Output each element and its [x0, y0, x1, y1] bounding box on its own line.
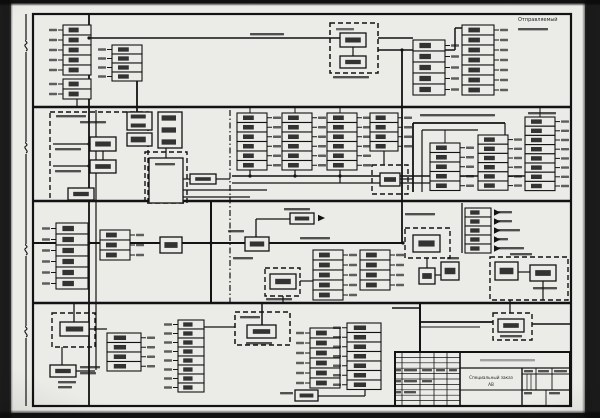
terminal-tag-smudge: [42, 238, 50, 240]
text-smudge: [498, 229, 520, 231]
text-smudge: [404, 391, 416, 393]
terminal-tag-smudge: [333, 374, 341, 376]
text-smudge: [240, 316, 260, 318]
terminal-tag-smudge: [296, 372, 304, 374]
terminal-label-smudge: [288, 115, 299, 120]
text-smudge: [233, 257, 253, 259]
terminal-tag-smudge: [561, 139, 569, 141]
terminal-label-smudge: [114, 345, 126, 350]
terminal-label-smudge: [333, 153, 344, 158]
terminal-tag-smudge: [333, 355, 341, 357]
text-smudge: [396, 380, 401, 382]
terminal-tag-smudge: [49, 59, 57, 61]
terminal-tag-smudge: [42, 282, 50, 284]
terminal-label-smudge: [183, 331, 192, 335]
component-label-smudge: [131, 124, 146, 128]
terminal-label-smudge: [436, 155, 447, 160]
text-smudge: [498, 247, 524, 249]
terminal-label-smudge: [106, 253, 117, 258]
terminal-tag-smudge: [136, 234, 144, 236]
text-smudge: [80, 372, 96, 374]
terminal-label-smudge: [316, 371, 327, 376]
terminal-label-smudge: [484, 174, 495, 178]
text-smudge: [420, 114, 495, 116]
terminal-label-smudge: [531, 184, 542, 188]
terminal-label-smudge: [419, 43, 431, 48]
terminal-label-smudge: [484, 165, 495, 169]
terminal-tag-smudge: [147, 365, 155, 367]
terminal-label-smudge: [354, 354, 366, 359]
component-label-smudge: [131, 137, 146, 143]
terminal-label-smudge: [531, 147, 542, 151]
terminal-label-smudge: [531, 156, 542, 160]
terminal-label-smudge: [354, 335, 366, 340]
text-smudge: [449, 369, 457, 371]
photo-background: ОтправляемыйСпециальный заказАВ: [0, 0, 600, 418]
diagram-text: АВ: [488, 382, 494, 387]
text-smudge: [284, 208, 310, 210]
terminal-label-smudge: [62, 270, 74, 275]
terminal-tag-smudge: [273, 164, 281, 166]
terminal-tag-smudge: [98, 57, 106, 59]
terminal-label-smudge: [106, 243, 117, 248]
component-label-smudge: [295, 217, 309, 221]
terminal-tag-smudge: [296, 382, 304, 384]
terminal-tag-smudge: [404, 145, 412, 147]
text-smudge: [524, 392, 532, 394]
terminal-label-smudge: [333, 144, 344, 149]
terminal-label-smudge: [316, 351, 327, 356]
terminal-label-smudge: [333, 115, 344, 120]
terminal-tag-smudge: [514, 148, 522, 150]
component-label-smudge: [345, 37, 361, 42]
terminal-tag-smudge: [396, 284, 404, 286]
terminal-label-smudge: [531, 119, 542, 123]
terminal-tag-smudge: [318, 155, 326, 157]
terminal-tag-smudge: [451, 77, 459, 79]
junction-dot: [401, 241, 404, 244]
text-smudge: [500, 335, 522, 337]
terminal-tag-smudge: [333, 384, 341, 386]
text-smudge: [404, 369, 417, 371]
text-smudge: [336, 28, 354, 30]
terminal-label-smudge: [376, 134, 386, 139]
terminal-label-smudge: [243, 115, 254, 120]
terminal-label-smudge: [470, 237, 479, 241]
terminal-label-smudge: [69, 58, 79, 63]
text-smudge: [447, 257, 459, 259]
component-label-smudge: [418, 240, 434, 246]
text-smudge: [498, 238, 508, 240]
terminal-tag-smudge: [466, 147, 474, 149]
text-smudge: [280, 392, 293, 394]
terminal-tag-smudge: [164, 377, 172, 379]
terminal-label-smudge: [118, 74, 129, 78]
terminal-label-smudge: [376, 125, 386, 130]
terminal-label-smudge: [243, 125, 254, 130]
terminal-tag-smudge: [333, 336, 341, 338]
text-smudge: [554, 370, 567, 372]
terminal-tag-smudge: [42, 227, 50, 229]
terminal-label-smudge: [484, 156, 495, 160]
terminal-label-smudge: [316, 381, 327, 386]
terminal-tag-smudge: [164, 359, 172, 361]
terminal-tag-smudge: [451, 66, 459, 68]
junction-dot: [293, 174, 296, 177]
text-smudge: [300, 237, 330, 239]
terminal-tag-smudge: [561, 148, 569, 150]
text-smudge: [396, 391, 401, 393]
terminal-tag-smudge: [514, 184, 522, 186]
terminal-tag-smudge: [296, 332, 304, 334]
component-label-smudge: [95, 141, 111, 146]
terminal-label-smudge: [470, 246, 479, 250]
junction-dot: [87, 241, 90, 244]
terminal-label-smudge: [376, 115, 386, 120]
terminal-label-smudge: [468, 78, 480, 83]
terminal-label-smudge: [316, 341, 327, 346]
terminal-tag-smudge: [49, 49, 57, 51]
text-smudge: [155, 163, 175, 165]
terminal-label-smudge: [288, 125, 299, 130]
terminal-label-smudge: [333, 134, 344, 139]
diagram-text: Специальный заказ: [469, 375, 513, 380]
terminal-label-smudge: [468, 38, 480, 43]
text-smudge: [498, 211, 512, 213]
component-label-smudge: [535, 270, 551, 276]
terminal-tag-smudge: [561, 120, 569, 122]
terminal-label-smudge: [114, 335, 126, 340]
terminal-label-smudge: [69, 92, 79, 97]
component-label-smudge: [66, 326, 83, 331]
component-label-smudge: [500, 268, 514, 274]
schematic-canvas: ОтправляемыйСпециальный заказАВ: [0, 0, 600, 418]
terminal-label-smudge: [366, 253, 377, 258]
text-smudge: [524, 370, 533, 372]
terminal-tag-smudge: [42, 271, 50, 273]
terminal-label-smudge: [333, 163, 344, 168]
terminal-tag-smudge: [500, 69, 508, 71]
terminal-tag-smudge: [466, 185, 474, 187]
terminal-label-smudge: [243, 153, 254, 158]
text-smudge: [333, 76, 369, 78]
text-smudge: [56, 115, 86, 117]
terminal-tag-smudge: [466, 166, 474, 168]
terminal-tag-smudge: [500, 49, 508, 51]
terminal-tag-smudge: [404, 117, 412, 119]
text-smudge: [58, 381, 76, 383]
terminal-tag-smudge: [514, 157, 522, 159]
terminal-tag-smudge: [514, 175, 522, 177]
terminal-tag-smudge: [273, 117, 281, 119]
terminal-label-smudge: [288, 134, 299, 139]
terminal-tag-smudge: [49, 83, 57, 85]
terminal-tag-smudge: [164, 323, 172, 325]
terminal-tag-smudge: [49, 69, 57, 71]
text-smudge: [55, 148, 81, 150]
terminal-label-smudge: [183, 358, 192, 362]
terminal-label-smudge: [419, 76, 431, 81]
terminal-tag-smudge: [514, 138, 522, 140]
terminal-tag-smudge: [500, 79, 508, 81]
text-smudge: [422, 369, 432, 371]
text-smudge: [422, 380, 432, 382]
component-label-smudge: [384, 177, 396, 182]
text-smudge: [533, 287, 557, 289]
component-label-smudge: [275, 279, 291, 284]
terminal-tag-smudge: [333, 346, 341, 348]
terminal-label-smudge: [354, 325, 366, 330]
text-smudge: [498, 220, 512, 222]
component-label-smudge: [422, 273, 432, 279]
text-smudge: [80, 121, 106, 123]
flow-arrow: [318, 215, 325, 221]
component-label-smudge: [164, 242, 177, 248]
terminal-tag-smudge: [273, 145, 281, 147]
terminal-tag-smudge: [296, 362, 304, 364]
terminal-tag-smudge: [318, 145, 326, 147]
terminal-label-smudge: [106, 233, 117, 238]
terminal-label-smudge: [62, 281, 74, 286]
terminal-label-smudge: [183, 385, 192, 389]
junction-dot: [87, 164, 90, 167]
terminal-label-smudge: [69, 82, 79, 87]
terminal-tag-smudge: [349, 294, 357, 296]
terminal-tag-smudge: [273, 155, 281, 157]
terminal-label-smudge: [354, 382, 366, 387]
terminal-tag-smudge: [404, 126, 412, 128]
terminal-tag-smudge: [363, 155, 371, 157]
terminal-label-smudge: [436, 183, 447, 188]
component-label-smudge: [162, 127, 176, 132]
terminal-tag-smudge: [333, 365, 341, 367]
terminal-label-smudge: [288, 163, 299, 168]
terminal-tag-smudge: [42, 260, 50, 262]
junction-dot: [338, 174, 341, 177]
text-smudge: [549, 392, 560, 394]
junction-dot: [87, 36, 90, 39]
terminal-tag-smudge: [349, 264, 357, 266]
terminal-tag-smudge: [561, 185, 569, 187]
terminal-tag-smudge: [514, 166, 522, 168]
terminal-label-smudge: [319, 263, 330, 268]
text-smudge: [405, 213, 435, 215]
terminal-label-smudge: [354, 373, 366, 378]
component-label-smudge: [300, 394, 314, 398]
text-smudge: [518, 28, 548, 30]
junction-dot: [87, 142, 90, 145]
terminal-label-smudge: [436, 164, 447, 169]
terminal-label-smudge: [114, 364, 126, 369]
terminal-label-smudge: [366, 263, 377, 268]
terminal-label-smudge: [531, 138, 542, 142]
terminal-tag-smudge: [500, 29, 508, 31]
terminal-tag-smudge: [147, 356, 155, 358]
text-smudge: [538, 370, 549, 372]
terminal-label-smudge: [468, 88, 480, 93]
terminal-tag-smudge: [451, 55, 459, 57]
terminal-label-smudge: [243, 163, 254, 168]
component-label-smudge: [503, 323, 519, 328]
diagram-text: Отправляемый: [518, 16, 558, 23]
terminal-label-smudge: [436, 145, 447, 150]
terminal-tag-smudge: [164, 350, 172, 352]
junction-dot: [400, 48, 403, 51]
component-label-smudge: [73, 192, 89, 196]
terminal-label-smudge: [114, 354, 126, 359]
text-smudge: [55, 170, 81, 172]
terminal-label-smudge: [531, 175, 542, 179]
terminal-label-smudge: [62, 259, 74, 264]
terminal-label-smudge: [354, 344, 366, 349]
terminal-tag-smudge: [164, 386, 172, 388]
component-label-smudge: [345, 60, 361, 64]
terminal-tag-smudge: [49, 93, 57, 95]
terminal-label-smudge: [419, 54, 431, 59]
terminal-tag-smudge: [349, 284, 357, 286]
text-smudge: [250, 33, 284, 35]
component-label-smudge: [95, 164, 111, 169]
text-smudge: [58, 386, 72, 388]
text-smudge: [510, 253, 532, 255]
text-smudge: [404, 380, 417, 382]
terminal-tag-smudge: [147, 337, 155, 339]
terminal-label-smudge: [183, 322, 192, 326]
junction-dot: [209, 241, 212, 244]
terminal-tag-smudge: [296, 352, 304, 354]
component-label-smudge: [250, 241, 264, 246]
terminal-label-smudge: [484, 147, 495, 151]
text-smudge: [246, 342, 272, 344]
terminal-tag-smudge: [396, 254, 404, 256]
terminal-label-smudge: [484, 183, 495, 187]
component-label-smudge: [55, 369, 71, 373]
terminal-tag-smudge: [147, 346, 155, 348]
terminal-label-smudge: [316, 361, 327, 366]
terminal-tag-smudge: [296, 342, 304, 344]
terminal-label-smudge: [468, 58, 480, 63]
junction-dot: [248, 174, 251, 177]
text-smudge: [480, 359, 535, 361]
terminal-tag-smudge: [318, 117, 326, 119]
terminal-tag-smudge: [164, 332, 172, 334]
terminal-tag-smudge: [466, 175, 474, 177]
terminal-label-smudge: [319, 273, 330, 278]
terminal-label-smudge: [69, 48, 79, 53]
component-label-smudge: [195, 177, 211, 181]
terminal-label-smudge: [531, 129, 542, 133]
terminal-label-smudge: [470, 219, 479, 223]
terminal-tag-smudge: [349, 254, 357, 256]
terminal-label-smudge: [366, 283, 377, 288]
terminal-tag-smudge: [561, 166, 569, 168]
terminal-label-smudge: [468, 28, 480, 33]
text-smudge: [228, 230, 244, 232]
terminal-tag-smudge: [98, 75, 106, 77]
terminal-tag-smudge: [451, 44, 459, 46]
terminal-tag-smudge: [396, 274, 404, 276]
text-smudge: [528, 112, 556, 114]
terminal-label-smudge: [319, 253, 330, 258]
terminal-tag-smudge: [42, 249, 50, 251]
terminal-label-smudge: [468, 48, 480, 53]
terminal-label-smudge: [62, 237, 74, 242]
terminal-label-smudge: [316, 331, 327, 336]
terminal-tag-smudge: [451, 88, 459, 90]
terminal-label-smudge: [183, 340, 192, 344]
terminal-tag-smudge: [49, 29, 57, 31]
terminal-tag-smudge: [500, 89, 508, 91]
terminal-label-smudge: [118, 47, 129, 51]
terminal-tag-smudge: [500, 39, 508, 41]
text-smudge: [396, 369, 401, 371]
terminal-tag-smudge: [49, 39, 57, 41]
terminal-label-smudge: [62, 248, 74, 253]
terminal-tag-smudge: [396, 264, 404, 266]
terminal-tag-smudge: [561, 176, 569, 178]
terminal-tag-smudge: [318, 126, 326, 128]
terminal-tag-smudge: [318, 164, 326, 166]
terminal-tag-smudge: [318, 136, 326, 138]
text-smudge: [266, 298, 292, 300]
terminal-label-smudge: [366, 273, 377, 278]
component-label-smudge: [253, 329, 270, 334]
terminal-label-smudge: [62, 226, 74, 231]
terminal-tag-smudge: [98, 66, 106, 68]
component-label-smudge: [445, 268, 456, 274]
terminal-tag-smudge: [136, 254, 144, 256]
terminal-label-smudge: [376, 144, 386, 149]
terminal-label-smudge: [243, 144, 254, 149]
terminal-label-smudge: [288, 144, 299, 149]
terminal-label-smudge: [118, 65, 129, 69]
terminal-label-smudge: [436, 174, 447, 179]
component-label-smudge: [131, 115, 146, 119]
terminal-label-smudge: [319, 293, 330, 298]
terminal-tag-smudge: [164, 341, 172, 343]
terminal-label-smudge: [531, 165, 542, 169]
terminal-tag-smudge: [500, 59, 508, 61]
terminal-label-smudge: [484, 137, 495, 141]
terminal-label-smudge: [288, 153, 299, 158]
text-smudge: [436, 369, 445, 371]
terminal-label-smudge: [419, 87, 431, 92]
terminal-label-smudge: [69, 38, 79, 43]
terminal-tag-smudge: [333, 327, 341, 329]
terminal-tag-smudge: [273, 136, 281, 138]
component-label-smudge: [162, 139, 176, 144]
terminal-tag-smudge: [363, 164, 371, 166]
terminal-tag-smudge: [404, 136, 412, 138]
terminal-label-smudge: [354, 363, 366, 368]
terminal-tag-smudge: [273, 126, 281, 128]
terminal-label-smudge: [470, 228, 479, 232]
terminal-label-smudge: [183, 349, 192, 353]
terminal-tag-smudge: [164, 368, 172, 370]
terminal-label-smudge: [183, 376, 192, 380]
terminal-tag-smudge: [98, 48, 106, 50]
terminal-label-smudge: [69, 28, 79, 33]
terminal-tag-smudge: [466, 156, 474, 158]
terminal-tag-smudge: [349, 274, 357, 276]
terminal-label-smudge: [468, 68, 480, 73]
terminal-label-smudge: [333, 125, 344, 130]
terminal-label-smudge: [243, 134, 254, 139]
terminal-tag-smudge: [561, 130, 569, 132]
terminal-label-smudge: [183, 367, 192, 371]
text-smudge: [80, 366, 100, 368]
terminal-label-smudge: [69, 68, 79, 73]
